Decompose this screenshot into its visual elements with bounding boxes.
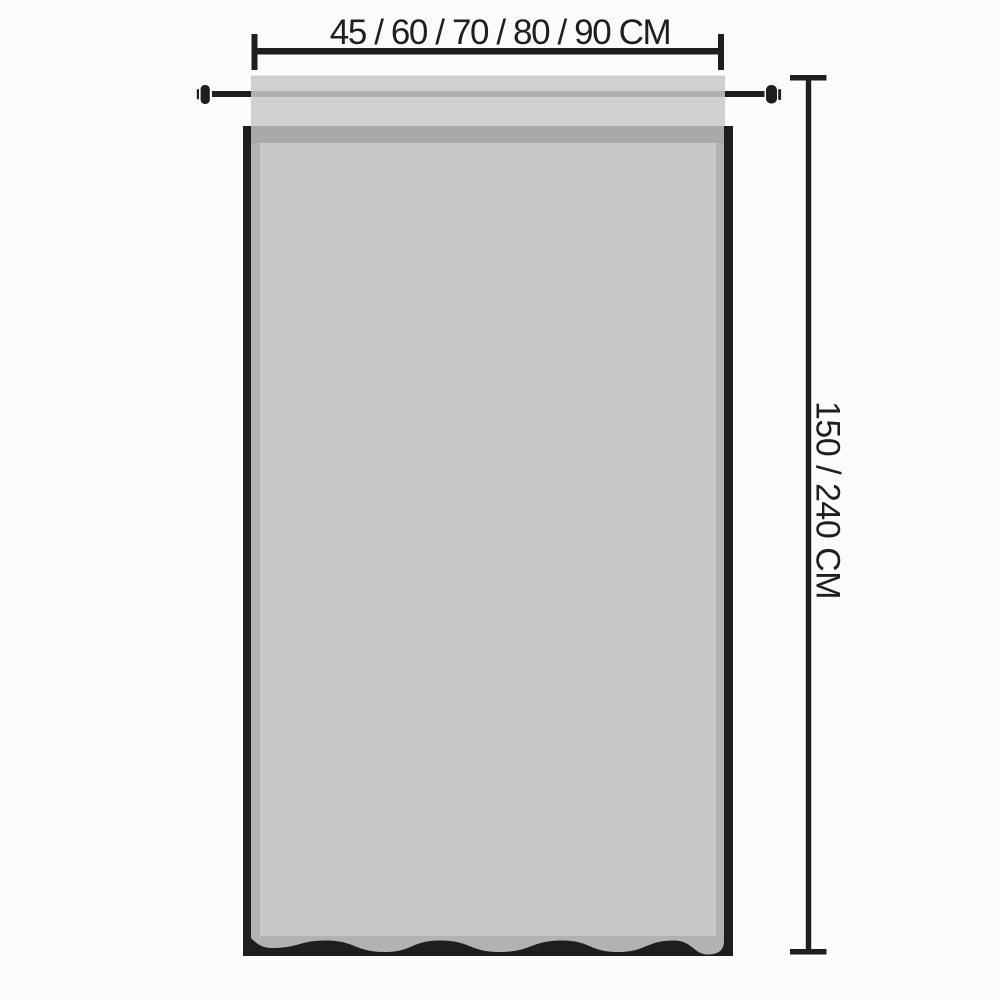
svg-text:45 / 60 / 70 / 80 / 90 CM: 45 / 60 / 70 / 80 / 90 CM <box>330 13 671 52</box>
svg-text:150 / 240 CM: 150 / 240 CM <box>809 401 847 599</box>
